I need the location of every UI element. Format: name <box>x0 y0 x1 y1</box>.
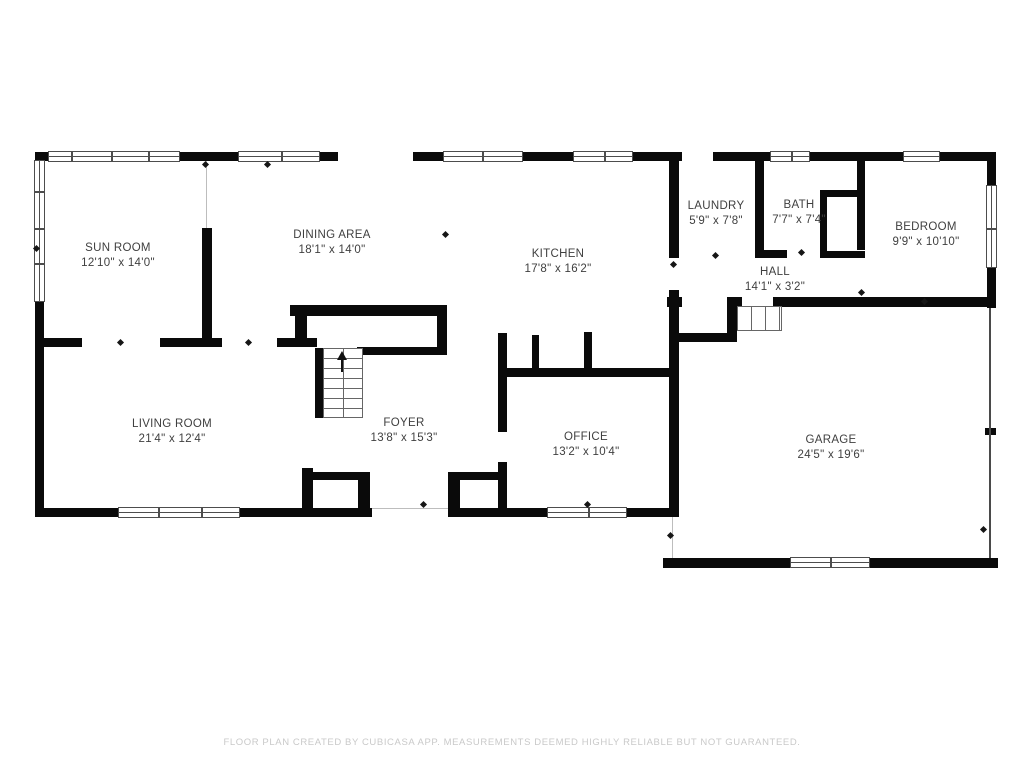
room-label-bath: BATH 7'7" x 7'4" <box>772 198 826 228</box>
window-mullion <box>987 228 996 230</box>
room-label-garage: GARAGE 24'5" x 19'6" <box>798 433 865 463</box>
room-dimensions: 5'9" x 7'8" <box>688 214 745 229</box>
wall-segment <box>358 472 370 517</box>
room-dimensions: 9'9" x 10'10" <box>893 235 960 250</box>
window <box>34 160 45 302</box>
window <box>48 151 180 162</box>
room-label-dining-area: DINING AREA 18'1" x 14'0" <box>293 228 370 258</box>
wall-segment <box>498 462 507 517</box>
room-name: GARAGE <box>798 433 865 448</box>
window-mullion <box>158 508 160 517</box>
footer-disclaimer: FLOOR PLAN CREATED BY CUBICASA APP. MEAS… <box>0 737 1024 748</box>
window-mullion <box>35 263 44 265</box>
room-dimensions: 7'7" x 7'4" <box>772 213 826 228</box>
window-mullion <box>111 152 113 161</box>
room-dimensions: 12'10" x 14'0" <box>81 256 155 271</box>
window-mullion <box>35 228 44 230</box>
window <box>118 507 240 518</box>
room-name: LIVING ROOM <box>132 417 212 432</box>
room-label-office: OFFICE 13'2" x 10'4" <box>553 430 620 460</box>
wall-segment <box>357 347 447 355</box>
opening-tick <box>442 231 449 238</box>
opening-tick <box>117 339 124 346</box>
wall-segment <box>987 268 996 308</box>
wall-segment <box>448 472 460 517</box>
room-label-foyer: FOYER 13'8" x 15'3" <box>371 416 438 446</box>
wall-segment <box>755 250 787 258</box>
floor-plan-canvas: SUN ROOM 12'10" x 14'0" DINING AREA 18'1… <box>0 0 1024 768</box>
opening-tick <box>670 261 677 268</box>
wall-segment <box>35 338 82 347</box>
room-dimensions: 17'8" x 16'2" <box>525 262 592 277</box>
window-mullion <box>71 152 73 161</box>
room-dimensions: 18'1" x 14'0" <box>293 243 370 258</box>
garage-steps <box>737 306 782 331</box>
window <box>443 151 523 162</box>
opening-tick <box>245 339 252 346</box>
window-mullion <box>148 152 150 161</box>
window <box>770 151 810 162</box>
wall-segment <box>523 152 573 161</box>
wall-segment <box>667 297 682 307</box>
window <box>573 151 633 162</box>
window-mullion <box>35 191 44 193</box>
wall-segment <box>669 290 679 517</box>
room-name: BEDROOM <box>893 220 960 235</box>
opening-tick <box>798 249 805 256</box>
room-name: FOYER <box>371 416 438 431</box>
room-dimensions: 14'1" x 3'2" <box>745 280 805 295</box>
wall-segment <box>35 508 118 517</box>
opening-tick <box>264 161 271 168</box>
wall-segment <box>773 297 996 307</box>
room-label-bedroom: BEDROOM 9'9" x 10'10" <box>893 220 960 250</box>
window <box>547 507 627 518</box>
room-name: HALL <box>745 265 805 280</box>
room-dimensions: 24'5" x 19'6" <box>798 448 865 463</box>
wall-segment <box>755 158 764 258</box>
room-name: SUN ROOM <box>81 241 155 256</box>
wall-segment <box>857 152 865 250</box>
window-mullion <box>604 152 606 161</box>
room-label-kitchen: KITCHEN 17'8" x 16'2" <box>525 247 592 277</box>
wall-segment <box>820 251 865 258</box>
wall-segment <box>295 316 307 340</box>
wall-segment <box>987 152 996 185</box>
wall-segment <box>35 302 44 517</box>
front-door-threshold <box>372 508 448 509</box>
garage-door-window <box>790 557 870 568</box>
window-mullion <box>791 152 793 161</box>
room-label-hall: HALL 14'1" x 3'2" <box>745 265 805 295</box>
wall-segment <box>663 558 790 568</box>
room-name: LAUNDRY <box>688 199 745 214</box>
room-name: DINING AREA <box>293 228 370 243</box>
opening-tick <box>420 501 427 508</box>
wall-segment <box>669 333 737 342</box>
window-mullion <box>482 152 484 161</box>
opening-tick <box>858 289 865 296</box>
wall-segment <box>315 348 323 418</box>
wall-segment <box>290 305 447 316</box>
wall-segment <box>498 333 507 432</box>
window-mullion <box>588 508 590 517</box>
room-label-living-room: LIVING ROOM 21'4" x 12'4" <box>132 417 212 447</box>
window-mullion <box>281 152 283 161</box>
opening-tick <box>712 252 719 259</box>
opening-tick <box>980 526 987 533</box>
opening-tick <box>202 161 209 168</box>
wall-segment <box>413 152 443 161</box>
wall-segment <box>498 368 679 377</box>
wall-segment <box>180 152 240 161</box>
room-dimensions: 13'8" x 15'3" <box>371 431 438 446</box>
window-mullion <box>201 508 203 517</box>
staircase <box>323 348 363 418</box>
room-label-laundry: LAUNDRY 5'9" x 7'8" <box>688 199 745 229</box>
room-label-sun-room: SUN ROOM 12'10" x 14'0" <box>81 241 155 271</box>
window <box>238 151 320 162</box>
wall-segment <box>160 338 222 347</box>
room-dimensions: 21'4" x 12'4" <box>132 432 212 447</box>
wall-segment <box>669 158 679 258</box>
room-name: OFFICE <box>553 430 620 445</box>
garage-side-door-threshold <box>672 517 673 558</box>
window-mullion <box>830 558 832 567</box>
wall-segment <box>320 152 338 161</box>
garage-right-wall <box>989 308 991 558</box>
sunroom-opening-line <box>206 161 207 228</box>
wall-segment <box>302 468 313 517</box>
window <box>903 151 940 162</box>
wall-segment <box>870 558 998 568</box>
wall-segment <box>202 228 212 347</box>
stairs-arrow-stem <box>341 359 343 372</box>
window <box>986 185 997 268</box>
room-name: KITCHEN <box>525 247 592 262</box>
room-name: BATH <box>772 198 826 213</box>
room-dimensions: 13'2" x 10'4" <box>553 445 620 460</box>
